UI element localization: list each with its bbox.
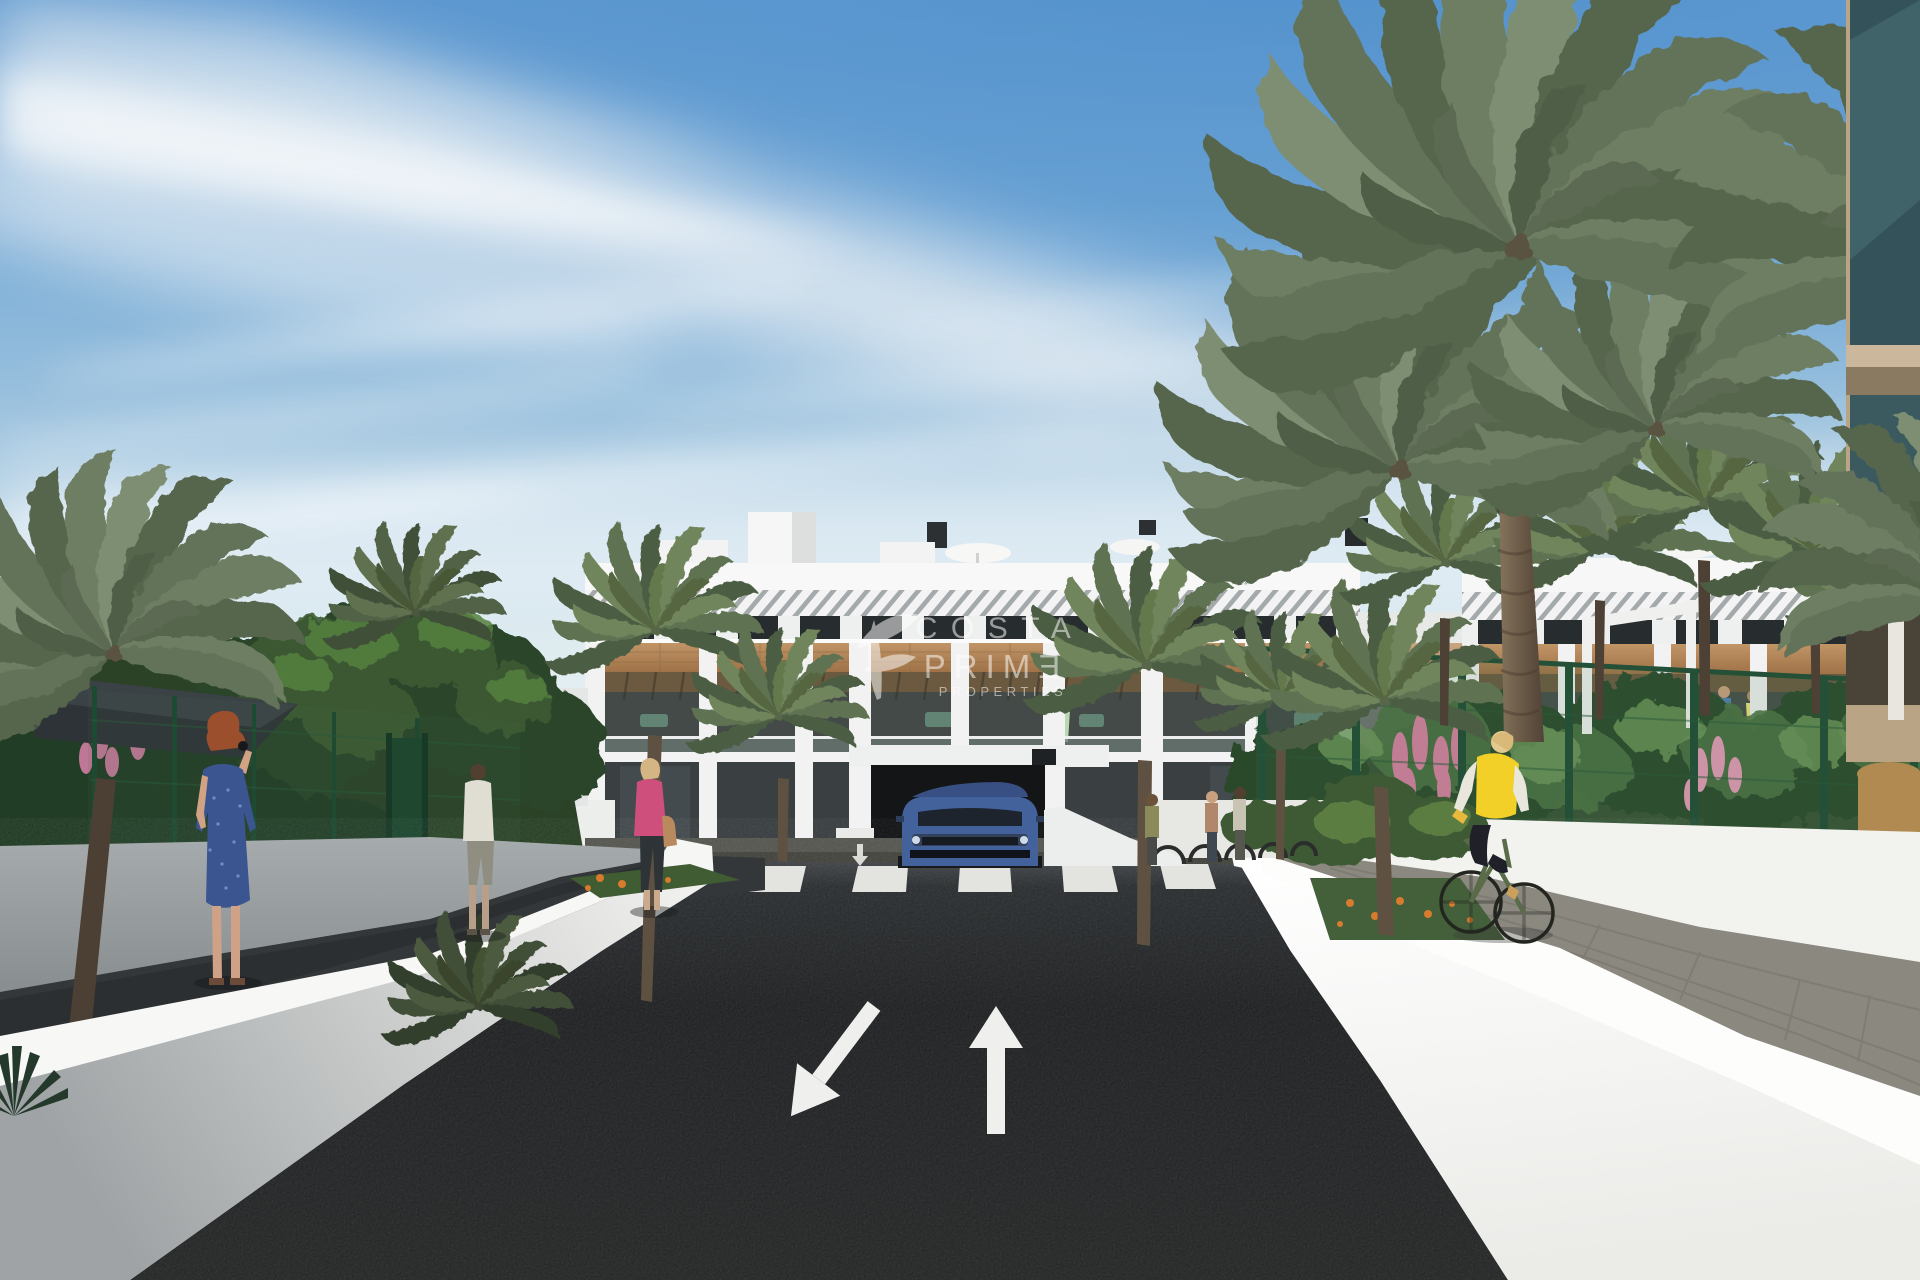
svg-text:COSTA: COSTA <box>916 612 1085 645</box>
svg-text:PRIMƎ: PRIMƎ <box>924 648 1069 685</box>
svg-text:PROPERTIES: PROPERTIES <box>939 684 1068 699</box>
